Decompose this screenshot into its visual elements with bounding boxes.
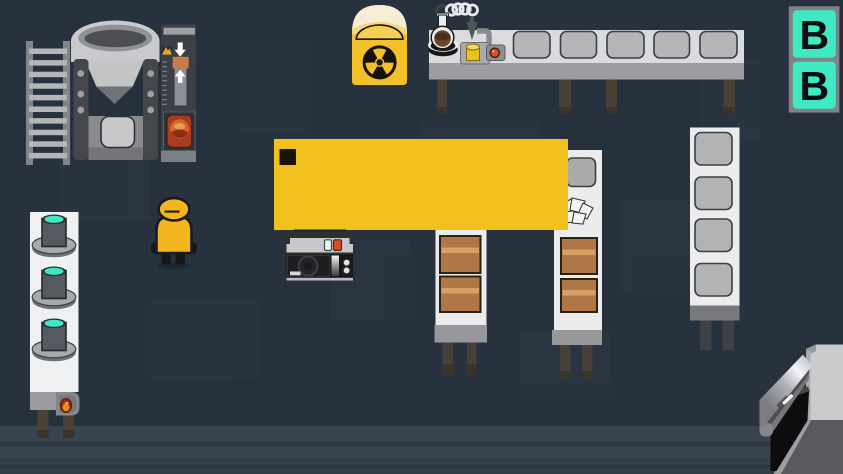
svg-text:B: B	[799, 12, 829, 58]
svg-text:B: B	[799, 63, 829, 109]
